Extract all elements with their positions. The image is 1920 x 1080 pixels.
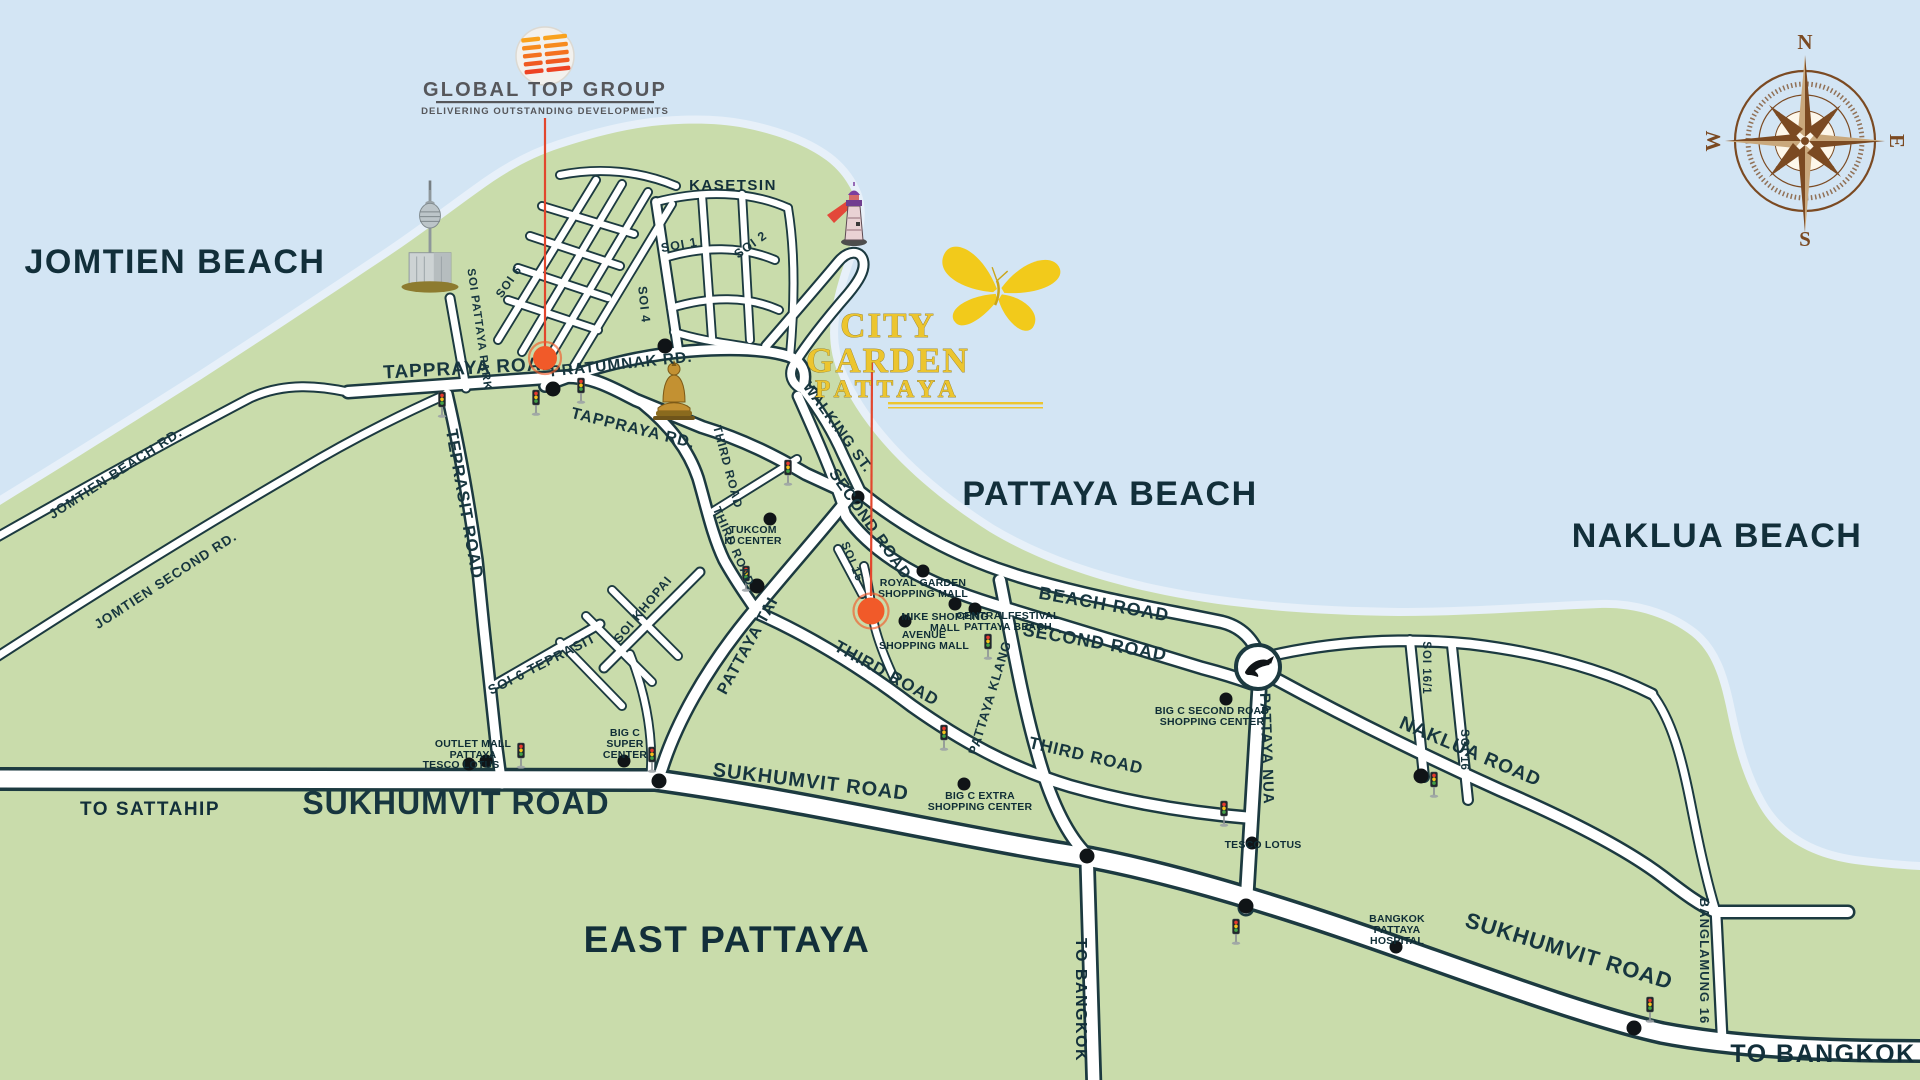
poi-label-big-c-super: CENTER bbox=[603, 749, 648, 761]
road-label-soi-16: SOI 16 bbox=[1458, 729, 1470, 771]
city-garden-line2: GARDEN bbox=[806, 341, 970, 380]
logo-underline bbox=[436, 101, 654, 103]
global-top-group-emblem bbox=[516, 27, 574, 85]
global-top-group-tagline: DELIVERING OUTSTANDING DEVELOPMENTS bbox=[421, 106, 669, 117]
area-label-naklua-beach: NAKLUA BEACH bbox=[1572, 517, 1863, 555]
city-garden-marker bbox=[854, 594, 889, 629]
compass-west-label: W bbox=[1701, 131, 1725, 152]
poi-label-bangkok-hospital: HOSPITAL bbox=[1370, 935, 1424, 947]
poi-label-avenue: SHOPPING MALL bbox=[879, 640, 969, 652]
poi-label-tukcom: IT CENTER bbox=[724, 535, 781, 547]
road-label-banglamung-16: BANGLAMUNG 16 bbox=[1697, 898, 1712, 1024]
map-canvas: TAPPRAYA ROAD TAPPRAYA RD. PRATUMNAK RD.… bbox=[0, 0, 1920, 1080]
compass-east-label: E bbox=[1885, 134, 1909, 148]
road-label-soi-16-1: SOI 16/1 bbox=[1420, 641, 1432, 694]
dolphin-roundabout-icon bbox=[1236, 645, 1280, 689]
compass-north-label: N bbox=[1797, 30, 1812, 54]
area-label-to-bangkok-corner: TO BANGKOK bbox=[1730, 1040, 1915, 1068]
poi-label-tesco-central: TESCO LOTUS bbox=[1225, 839, 1302, 851]
city-garden-line1: CITY bbox=[840, 306, 936, 345]
logo-underline bbox=[888, 407, 1043, 409]
city-garden-line3: PATTAYA bbox=[815, 376, 961, 403]
area-label-to-sattahip: TO SATTAHIP bbox=[80, 799, 220, 820]
poi-dot bbox=[958, 778, 971, 791]
logo-underline bbox=[888, 402, 1043, 404]
global-top-group-name: GLOBAL TOP GROUP bbox=[423, 79, 667, 101]
poi-label-big-c-second: SHOPPING CENTER bbox=[1160, 716, 1265, 728]
area-label-kasetsin: KASETSIN bbox=[689, 177, 777, 194]
pattaya-location-map: TAPPRAYA ROAD TAPPRAYA RD. PRATUMNAK RD.… bbox=[0, 0, 1920, 1080]
poi-label-royal-garden: SHOPPING MALL bbox=[878, 588, 968, 600]
poi-dot bbox=[1220, 693, 1233, 706]
poi-label-central-festival: PATTAYA BEACH bbox=[964, 621, 1052, 633]
poi-label-big-c-extra: SHOPPING CENTER bbox=[928, 801, 1033, 813]
road-label-sukhumvit-big: SUKHUMVIT ROAD bbox=[302, 785, 609, 821]
global-top-group-marker bbox=[529, 342, 561, 374]
area-label-east-pattaya: EAST PATTAYA bbox=[584, 919, 871, 960]
area-label-pattaya-beach: PATTAYA BEACH bbox=[962, 475, 1257, 513]
area-label-jomtien-beach: JOMTIEN BEACH bbox=[25, 243, 326, 281]
compass-south-label: S bbox=[1799, 227, 1811, 251]
poi-label-outlet-mall: PATTAYA bbox=[450, 749, 497, 761]
area-label-to-bangkok-vertical: TO BANGKOK bbox=[1072, 938, 1089, 1062]
poi-dot bbox=[917, 565, 930, 578]
